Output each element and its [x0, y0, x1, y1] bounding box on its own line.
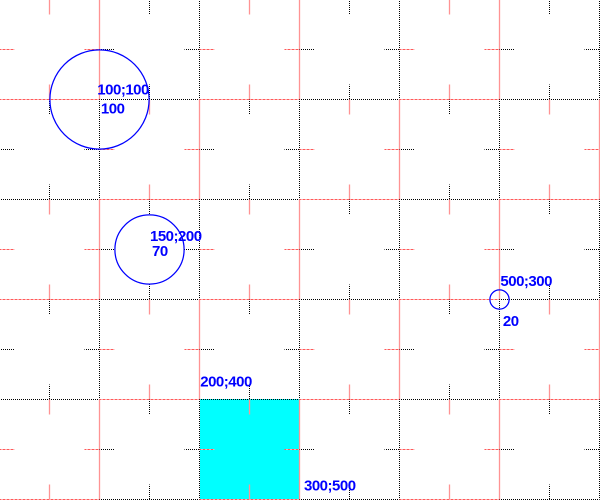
svg-text:100: 100	[101, 100, 125, 117]
svg-text:300;500: 300;500	[304, 478, 356, 495]
svg-text:100;100: 100;100	[97, 81, 149, 98]
svg-text:20: 20	[503, 313, 519, 330]
svg-text:70: 70	[152, 243, 168, 260]
svg-text:500;300: 500;300	[500, 273, 552, 290]
svg-text:200;400: 200;400	[200, 374, 252, 391]
